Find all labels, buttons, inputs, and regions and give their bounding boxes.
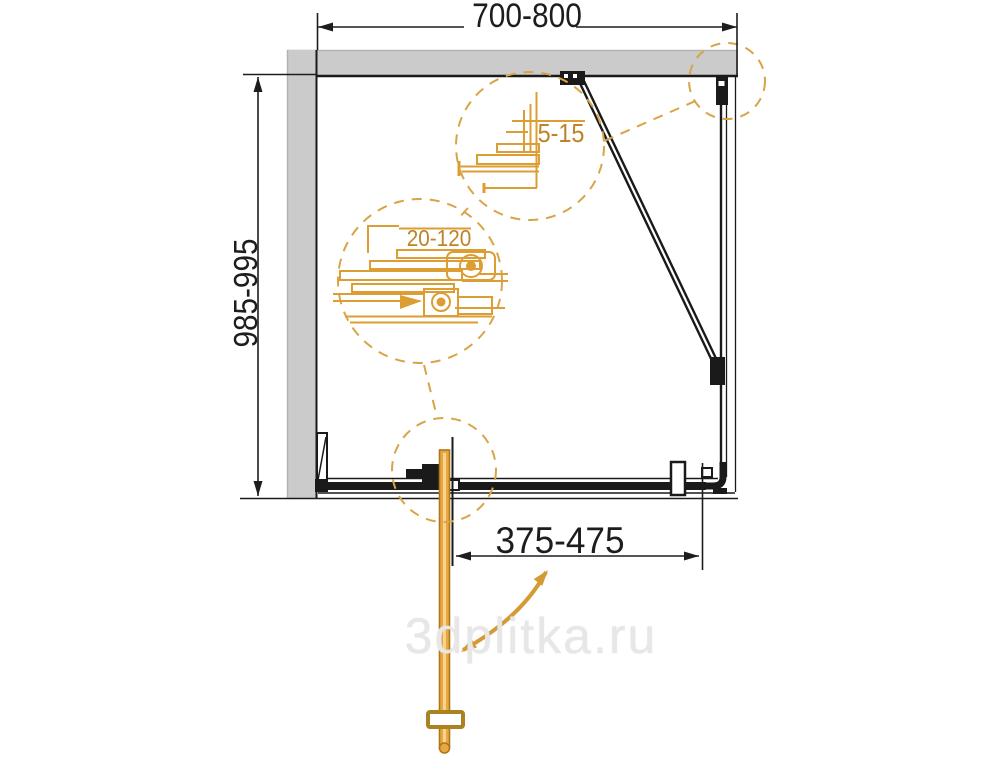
wall-top <box>287 50 738 76</box>
wall-profile-bracket <box>315 433 328 492</box>
dimension-top-width-label: 700-800 <box>439 0 615 32</box>
door-panel <box>428 450 463 753</box>
detail-wall-adjustment-label: 20-120 <box>385 226 493 250</box>
top-pivot-block <box>716 75 728 105</box>
watermark: 3dplitka.ru <box>331 606 731 666</box>
rail-clamp <box>671 462 685 495</box>
technical-drawing: 700-800 985-995 375-475 5-15 20-120 3dpl… <box>0 0 989 757</box>
dimension-door-width-label: 375-475 <box>465 524 655 556</box>
stabilizer-wall-bracket <box>560 71 585 85</box>
wall-left <box>287 50 316 498</box>
stabilizer-bar <box>560 71 725 385</box>
stabilizer-glass-bracket <box>710 357 725 385</box>
dimension-side-depth-label: 985-995 <box>228 199 262 388</box>
detail-top-adjustment-label: 5-15 <box>516 120 606 146</box>
door-handle <box>428 712 463 727</box>
detail-callouts <box>338 43 765 522</box>
